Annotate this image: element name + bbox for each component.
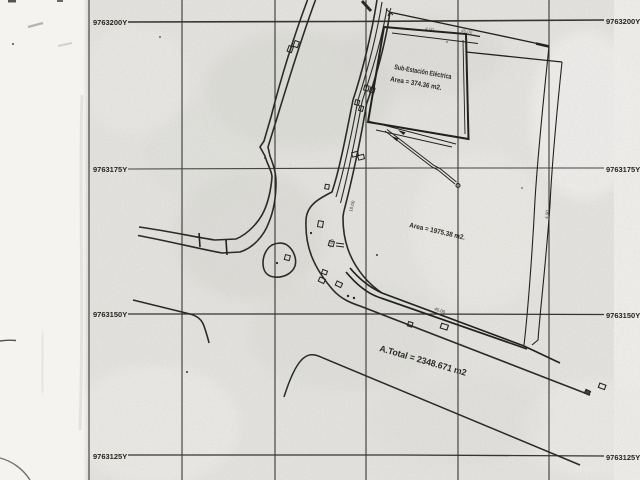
svg-text:9763125Y: 9763125Y (93, 452, 127, 461)
svg-text:9763200Y: 9763200Y (93, 18, 127, 27)
svg-text:9763175Y: 9763175Y (606, 165, 640, 174)
svg-text:9763175Y: 9763175Y (93, 165, 127, 174)
svg-text:9763150Y: 9763150Y (606, 311, 640, 320)
svg-text:9763125Y: 9763125Y (606, 453, 640, 462)
svg-text:9763150Y: 9763150Y (93, 310, 127, 319)
svg-text:9763200Y: 9763200Y (606, 17, 640, 26)
